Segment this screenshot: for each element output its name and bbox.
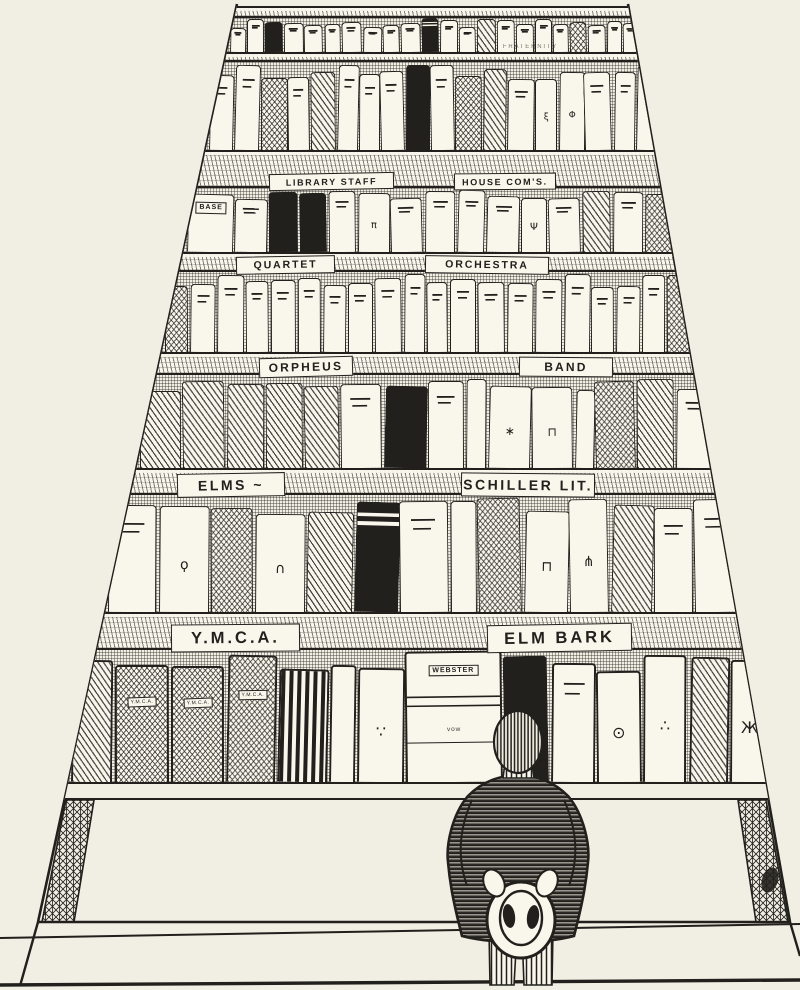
shelf-label-library-staff: LIBRARY STAFF bbox=[269, 172, 394, 191]
shelf-label-house-com-s: HOUSE COM'S. bbox=[454, 173, 556, 191]
shelf-label-y-m-c-a: Y.M.C.A. bbox=[171, 623, 300, 652]
shelf-label-schiller-lit: SCHILLER LIT. bbox=[460, 472, 594, 497]
shelf-label-elms: ELMS ~ bbox=[177, 472, 285, 498]
shelf-label-quartet: QUARTET bbox=[236, 255, 335, 275]
head bbox=[494, 711, 542, 773]
shelf-label-fraternity: FRATERNITY bbox=[497, 41, 563, 52]
shelf-label-elm-bark: ELM BARK bbox=[487, 623, 633, 654]
shelf-label-orchestra: ORCHESTRA bbox=[425, 255, 549, 275]
shelf-label-band: BAND bbox=[519, 357, 613, 378]
standing-figure bbox=[0, 0, 800, 990]
bookshelf-illustration: ξΦBASEπΨ∗⊓ϙ∩⊓⋔Y.M.C.A.Y.M.C.A.Y.M.C.A.∵W… bbox=[0, 0, 800, 990]
shelf-label-orpheus: ORPHEUS bbox=[259, 356, 353, 378]
